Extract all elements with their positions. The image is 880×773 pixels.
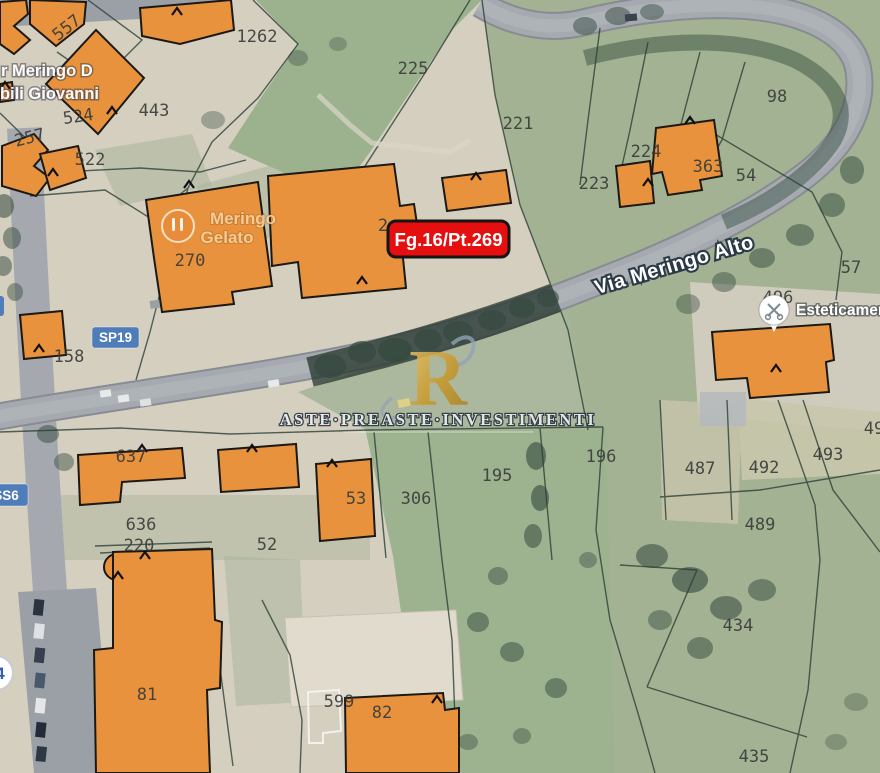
parcel-number-49: 49 [864,419,880,439]
parcel-number-306: 306 [401,489,432,509]
parcel-number-637: 637 [116,447,147,467]
parcel-number-443: 443 [139,101,170,121]
parcel-number-195: 195 [482,466,513,486]
building [442,170,511,211]
cadastral-marker-label: Fg.16/Pt.269 [395,229,503,250]
parcel-number-52: 52 [257,535,277,555]
road-badge-4-label[interactable]: 4 [0,664,5,683]
building-81 [94,549,222,773]
parcel-number-223: 223 [579,174,610,194]
parcel-number-196: 196 [586,447,617,467]
place-label-line1: r Meringo D [1,62,93,80]
building [616,161,654,207]
parcel-number-1262: 1262 [237,27,278,47]
place-label-line2: bili Giovanni [0,85,99,103]
map-canvas[interactable]: 5571262225221982232243635444352452225727… [0,0,880,773]
building [218,444,299,492]
poi-meringo-label-line2[interactable]: Gelato [201,228,254,247]
parcel-number-224: 224 [631,142,662,162]
road-badge-ss6[interactable]: SS6 [0,484,28,506]
road-badge-sp19-label[interactable]: SP19 [99,330,132,345]
parcel-number-435: 435 [739,747,770,767]
parcel-number-487: 487 [685,459,716,479]
cadastral-marker: Fg.16/Pt.269 [388,221,509,257]
parcel-number-599: 599 [324,692,355,712]
parcel-number-98: 98 [767,87,787,107]
parcel-number-158: 158 [54,347,85,367]
parcel-number-82: 82 [372,703,392,723]
poi-meringo-label-line1[interactable]: Meringo [210,209,276,228]
road-badge-sliver [0,296,4,316]
road-badge-sp19[interactable]: SP19 [92,327,139,348]
parcel-number-489: 489 [745,515,776,535]
building-82 [345,693,459,773]
parcel-number-54: 54 [736,166,756,186]
parcel-number-434: 434 [723,616,754,636]
parcel-number-225: 225 [398,59,429,79]
parcel-number-524: 524 [62,105,95,129]
parcel-number-53: 53 [346,489,366,509]
poi-estetica-label[interactable]: Esteticamente [796,302,880,319]
parcel-number-493: 493 [813,445,844,465]
parcel-number-57: 57 [841,258,861,278]
parcel-number-636: 636 [126,515,157,535]
parcel-number-522: 522 [75,150,106,170]
parcel-number-363: 363 [693,157,724,177]
watermark-text: ASTE·PREASTE·INVESTIMENTI [280,410,597,429]
parcel-number-81: 81 [137,685,157,705]
parcel-number-221: 221 [503,114,534,134]
parcel-number-492: 492 [749,458,780,478]
parcel-number-220: 220 [124,536,155,556]
parcel-number-270: 270 [175,251,206,271]
road-badge-ss6-label[interactable]: SS6 [0,488,19,503]
